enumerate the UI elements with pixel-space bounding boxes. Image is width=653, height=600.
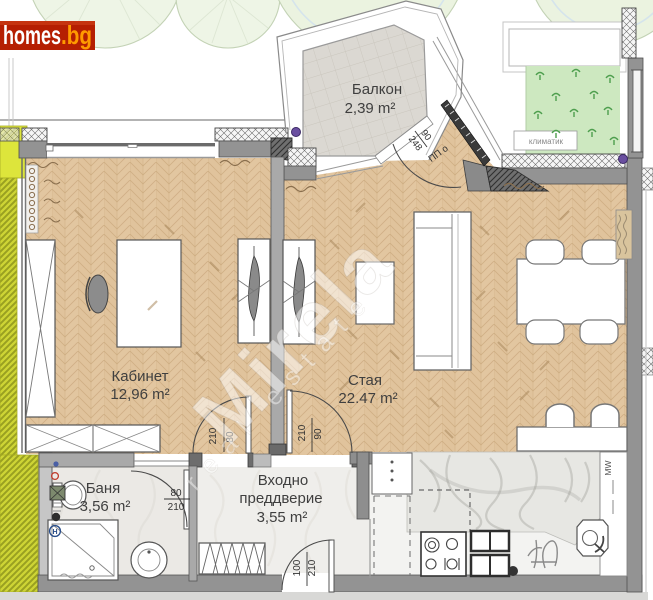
svg-text:преддверие: преддверие [239, 490, 322, 507]
svg-text:Баня: Баня [86, 480, 121, 497]
svg-text:Балкон: Балкон [352, 81, 402, 98]
svg-text:22.47 m²: 22.47 m² [338, 390, 397, 407]
svg-text:homes: homes [3, 20, 61, 50]
svg-text:210: 210 [168, 502, 185, 513]
svg-text:80: 80 [170, 488, 182, 499]
svg-text:H: H [52, 529, 57, 536]
svg-text:Кабинет: Кабинет [111, 368, 168, 385]
svg-text:90: 90 [313, 428, 324, 440]
svg-text:3,56 m²: 3,56 m² [80, 498, 131, 515]
svg-text:климатик: климатик [529, 137, 564, 146]
svg-text:3,55 m²: 3,55 m² [257, 509, 308, 526]
svg-text:Стая: Стая [348, 372, 382, 389]
svg-text:Входно: Входно [258, 472, 309, 489]
svg-text:2,39 m²: 2,39 m² [345, 100, 396, 117]
svg-text:210: 210 [307, 559, 318, 576]
svg-text:.bg: .bg [61, 20, 92, 50]
svg-text:210: 210 [297, 424, 308, 441]
svg-text:12,96 m²: 12,96 m² [110, 386, 169, 403]
svg-text:MW: MW [603, 460, 613, 475]
svg-text:100: 100 [292, 559, 303, 576]
